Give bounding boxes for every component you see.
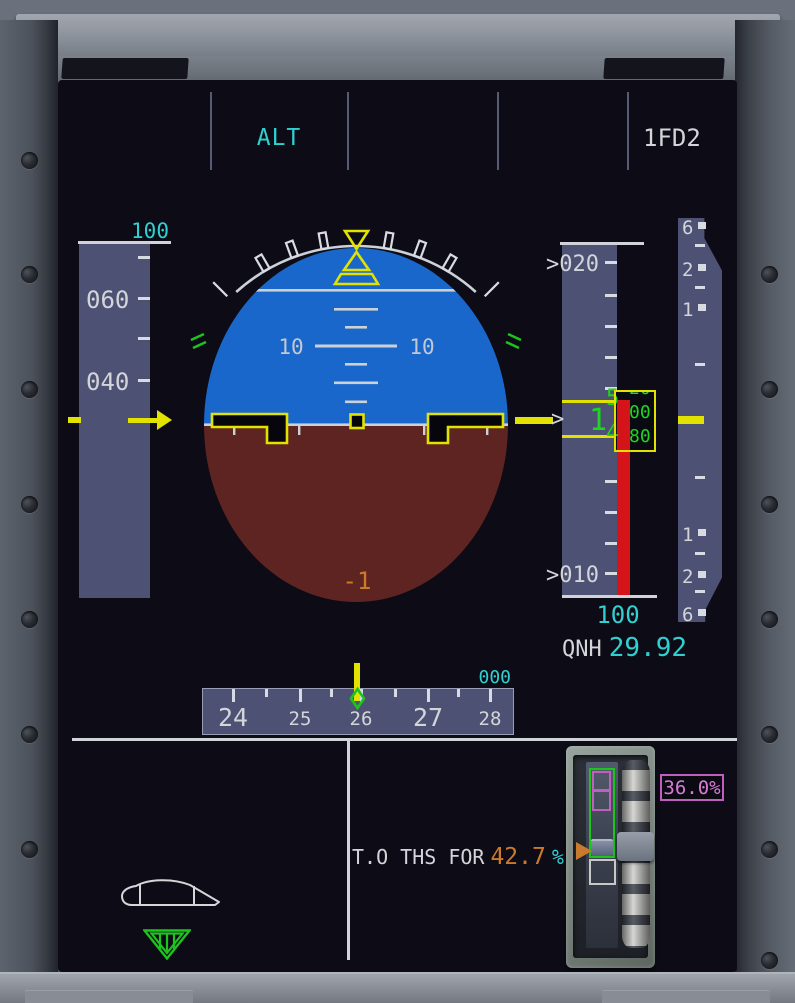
vs-tick [695, 363, 705, 366]
speed-tick [138, 337, 150, 340]
ths-target-value: 42.7 [490, 844, 545, 870]
altitude-target-chevron: > [551, 407, 564, 432]
pfd-screen: ALT 1FD2 100 060 040 [58, 80, 737, 972]
heading-tick-major [489, 689, 492, 702]
speed-label: 040 [86, 368, 129, 396]
screw-icon [761, 952, 778, 969]
heading-tick-major [232, 689, 235, 702]
qnh-readout: QNH 29.92 [562, 633, 687, 663]
altitude-label: >010 [546, 563, 599, 588]
fma-divider [497, 92, 499, 170]
altitude-tick [605, 325, 617, 328]
pitch-label-right: 10 [409, 335, 434, 359]
heading-tick-minor [330, 689, 333, 697]
bezel-bottom-tab-left [25, 990, 193, 1003]
altitude-window-frame [614, 390, 656, 452]
trim-wheel-handle[interactable] [617, 832, 654, 861]
qnh-label: QNH [562, 637, 602, 662]
bezel-vent-slot-left [61, 58, 188, 79]
fma-vertical-mode: ALT [228, 125, 330, 151]
fma-divider [210, 92, 212, 170]
vs-tick [695, 244, 705, 247]
screw-icon [761, 726, 778, 743]
screw-icon [761, 381, 778, 398]
vs-label: 2 [682, 566, 693, 588]
screw-icon [21, 266, 38, 283]
screw-icon [21, 726, 38, 743]
altitude-tick [605, 356, 617, 359]
vs-square-mark [698, 609, 706, 616]
vs-tick [695, 590, 705, 593]
vs-square-mark [698, 529, 706, 536]
heading-tick-minor [394, 689, 397, 697]
heading-label: 25 [285, 708, 315, 730]
screw-icon [761, 611, 778, 628]
altitude-tick [605, 480, 617, 483]
aircraft-center-box [351, 415, 364, 429]
trim-magenta-band [592, 771, 611, 811]
lower-section-divider [72, 738, 737, 741]
trim-white-band [589, 859, 616, 885]
speed-pointer-line [128, 418, 158, 423]
airfoil-icon [120, 875, 222, 909]
vs-square-mark [698, 222, 706, 229]
heading-label: 28 [475, 708, 505, 730]
screw-icon [761, 266, 778, 283]
lower-section-vertical-divider [347, 741, 350, 960]
speed-tick [138, 256, 150, 259]
ths-target-unit: % [552, 845, 564, 869]
speed-pointer-arrow-icon [157, 410, 172, 430]
vs-tick [695, 476, 705, 479]
vs-square-mark [698, 571, 706, 578]
vs-tick [695, 552, 705, 555]
vs-label: 6 [682, 604, 693, 626]
fma-divider [627, 92, 629, 170]
altitude-tick [605, 511, 617, 514]
ths-message-prefix: T.O THS FOR [352, 845, 484, 869]
selected-speed: 100 [124, 219, 176, 243]
attitude-indicator: 10 10 [180, 225, 535, 615]
altitude-label: >020 [546, 252, 599, 277]
altitude-target-bar [515, 417, 553, 424]
heading-tick-minor [457, 689, 460, 697]
trim-magenta-divider [594, 789, 609, 792]
vs-label: 2 [682, 259, 693, 281]
altitude-tick [605, 572, 617, 575]
selected-altitude: 100 [586, 601, 650, 629]
altitude-tick [605, 261, 617, 264]
heading-tick-major [427, 689, 430, 702]
altitude-tick [605, 294, 617, 297]
vs-label: 1 [682, 524, 693, 546]
ths-position-readout: 36.0% [660, 774, 724, 801]
bezel-vent-slot-right [603, 58, 724, 79]
bezel-bottom-tab-right [602, 990, 770, 1003]
heading-tick-major [299, 689, 302, 702]
pitch-label-left: 10 [278, 335, 303, 359]
screw-icon [21, 381, 38, 398]
screw-icon [761, 841, 778, 858]
fma-fd-status: 1FD2 [643, 124, 733, 152]
screw-icon [21, 496, 38, 513]
flaps-symbol-icon [143, 929, 191, 960]
screw-icon [21, 841, 38, 858]
track-diamond-icon [348, 687, 367, 710]
speed-tick [138, 379, 150, 382]
heading-tick-minor [265, 689, 268, 697]
trim-wheel-housing [566, 746, 655, 968]
vs-needle [678, 416, 704, 424]
altitude-tick [605, 542, 617, 545]
speed-label: 060 [86, 286, 129, 314]
altitude-tape-bottom-line [562, 595, 657, 598]
vs-tick [695, 286, 705, 289]
heading-label: 27 [408, 703, 448, 732]
selected-heading: 000 [471, 667, 511, 688]
vs-label: 1 [682, 299, 693, 321]
fma-divider [347, 92, 349, 170]
pfd-unit: ALT 1FD2 100 060 040 [0, 0, 795, 1003]
vs-square-mark [698, 264, 706, 271]
qnh-value: 29.92 [609, 633, 687, 663]
ths-message: T.O THS FOR 42.7 % [352, 844, 564, 870]
glareshield-beam [16, 14, 780, 59]
trim-target-pointer-icon [576, 842, 592, 860]
screw-icon [21, 611, 38, 628]
heading-label: 24 [213, 703, 253, 732]
screw-icon [761, 496, 778, 513]
speed-tick [138, 297, 150, 300]
speed-reference-dash [68, 417, 81, 423]
trim-position-slider [591, 839, 613, 856]
pitch-attitude-readout: -1 [343, 567, 372, 595]
heading-label: 26 [346, 708, 376, 730]
vs-square-mark [698, 304, 706, 311]
screw-icon [21, 152, 38, 169]
vs-label: 6 [682, 217, 693, 239]
altitude-digit-thousands: 1 [589, 406, 607, 436]
pitch-line-wide [228, 289, 484, 292]
